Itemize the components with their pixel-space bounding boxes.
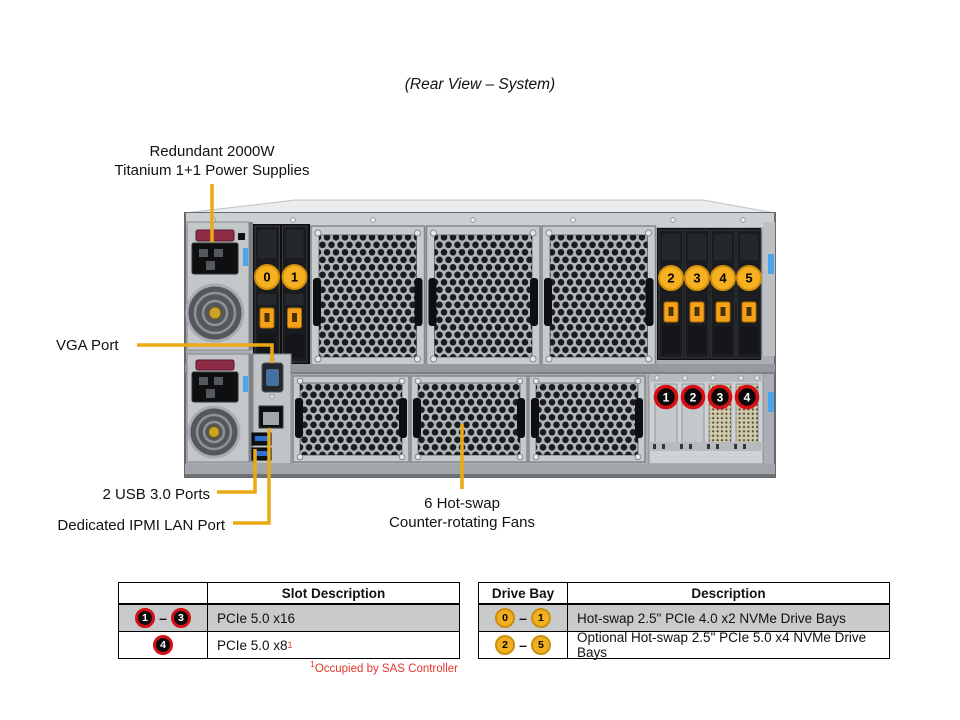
callout-psu-line1: Redundant 2000W (83, 142, 341, 161)
drive-bay-badge: 2 (495, 635, 515, 655)
drive-bay-description: Optional Hot-swap 2.5" PCIe 5.0 x4 NVMe … (568, 632, 889, 658)
fan-module (542, 226, 656, 366)
drive-table-header-col1: Drive Bay (479, 583, 568, 603)
callout-psu-line2: Titanium 1+1 Power Supplies (83, 161, 341, 180)
power-supply-bottom (187, 354, 249, 462)
drive-bay-badge: 1 (531, 608, 551, 628)
slot-description: PCIe 5.0 x81 (208, 632, 459, 658)
drive-bay-badge: 0 (495, 608, 515, 628)
drive-bay-sled: 1 (283, 226, 308, 362)
range-dash: – (519, 637, 527, 653)
fan-row-top (311, 226, 656, 366)
callout-fans-line2: Counter-rotating Fans (362, 513, 562, 532)
drive-bay-sled: 5 (737, 230, 761, 358)
table-row: 2 – 5 Optional Hot-swap 2.5" PCIe 5.0 x4… (479, 631, 889, 658)
pcie-slot-area: 1 2 3 4 (649, 374, 763, 464)
server-rear-illustration: 0 1 (183, 196, 779, 488)
callout-ipmi-label: Dedicated IPMI LAN Port (0, 516, 225, 535)
slot-badge: 4 (153, 635, 173, 655)
drive-bay-sled: 3 (685, 230, 709, 358)
pcie-slot-number: 3 (717, 391, 724, 405)
power-supply-top (187, 222, 249, 350)
callout-fans-label: 6 Hot-swap Counter-rotating Fans (362, 494, 562, 532)
page: { "title": "(Rear View \u2013 System)", … (0, 0, 960, 720)
drive-bay-table: Drive Bay Description 0 – 1 Hot-swap 2.5… (478, 582, 890, 659)
chassis-release-tab (768, 392, 774, 412)
drive-bay-sled: 4 (711, 230, 735, 358)
fan-module (529, 376, 645, 462)
slot-table: Slot Description 1 – 3 PCIe 5.0 x16 4 PC… (118, 582, 460, 659)
slot-badge: 1 (135, 608, 155, 628)
table-footnote: 1Occupied by SAS Controller (118, 659, 458, 675)
callout-psu-label: Redundant 2000W Titanium 1+1 Power Suppl… (83, 142, 341, 180)
drive-bays-2-5: 2 3 4 5 (657, 228, 761, 360)
drive-bay-number: 0 (263, 270, 270, 285)
psu-release-tab (243, 248, 248, 266)
fan-module (427, 226, 541, 366)
psu-fan-grille (189, 407, 239, 457)
chassis-release-tab (768, 254, 774, 274)
psu-release-tab (243, 376, 248, 392)
pcie-slot-number: 4 (744, 391, 751, 405)
fan-row-bottom (293, 376, 645, 462)
drive-bay-badge: 5 (531, 635, 551, 655)
rear-io-panel (252, 354, 291, 464)
drive-bay-number: 2 (667, 271, 674, 286)
range-dash: – (159, 610, 167, 626)
drive-table-header-col2: Description (568, 583, 889, 603)
fan-module (311, 226, 425, 366)
page-title: (Rear View – System) (0, 76, 960, 94)
callout-fans-line1: 6 Hot-swap (362, 494, 562, 513)
drive-bay-number: 3 (693, 271, 700, 286)
slot-description: PCIe 5.0 x16 (208, 605, 459, 631)
slot-badge: 3 (171, 608, 191, 628)
table-row: 4 PCIe 5.0 x81 (119, 631, 459, 658)
table-row: 0 – 1 Hot-swap 2.5" PCIe 4.0 x2 NVMe Dri… (479, 605, 889, 631)
slot-table-header-col2: Slot Description (208, 583, 459, 603)
slot-table-header-col1 (119, 583, 208, 603)
fan-module (293, 376, 409, 462)
drive-bay-number: 4 (719, 271, 727, 286)
psu-fan-grille (187, 285, 243, 341)
drive-bay-number: 1 (291, 270, 298, 285)
drive-bay-sled: 2 (659, 230, 683, 358)
pcie-slot-number: 2 (690, 391, 697, 405)
table-row: 1 – 3 PCIe 5.0 x16 (119, 605, 459, 631)
range-dash: – (519, 610, 527, 626)
drive-table-header: Drive Bay Description (479, 583, 889, 605)
pcie-slot-number: 1 (663, 391, 670, 405)
fan-module (411, 376, 527, 462)
drive-bay-number: 5 (745, 271, 752, 286)
drive-bay-sled: 0 (255, 226, 280, 362)
drive-bays-0-1: 0 1 (253, 224, 310, 364)
callout-usb-label: 2 USB 3.0 Ports (0, 485, 210, 504)
slot-table-header: Slot Description (119, 583, 459, 605)
drive-bay-description: Hot-swap 2.5" PCIe 4.0 x2 NVMe Drive Bay… (568, 605, 889, 631)
callout-vga-label: VGA Port (56, 336, 119, 355)
